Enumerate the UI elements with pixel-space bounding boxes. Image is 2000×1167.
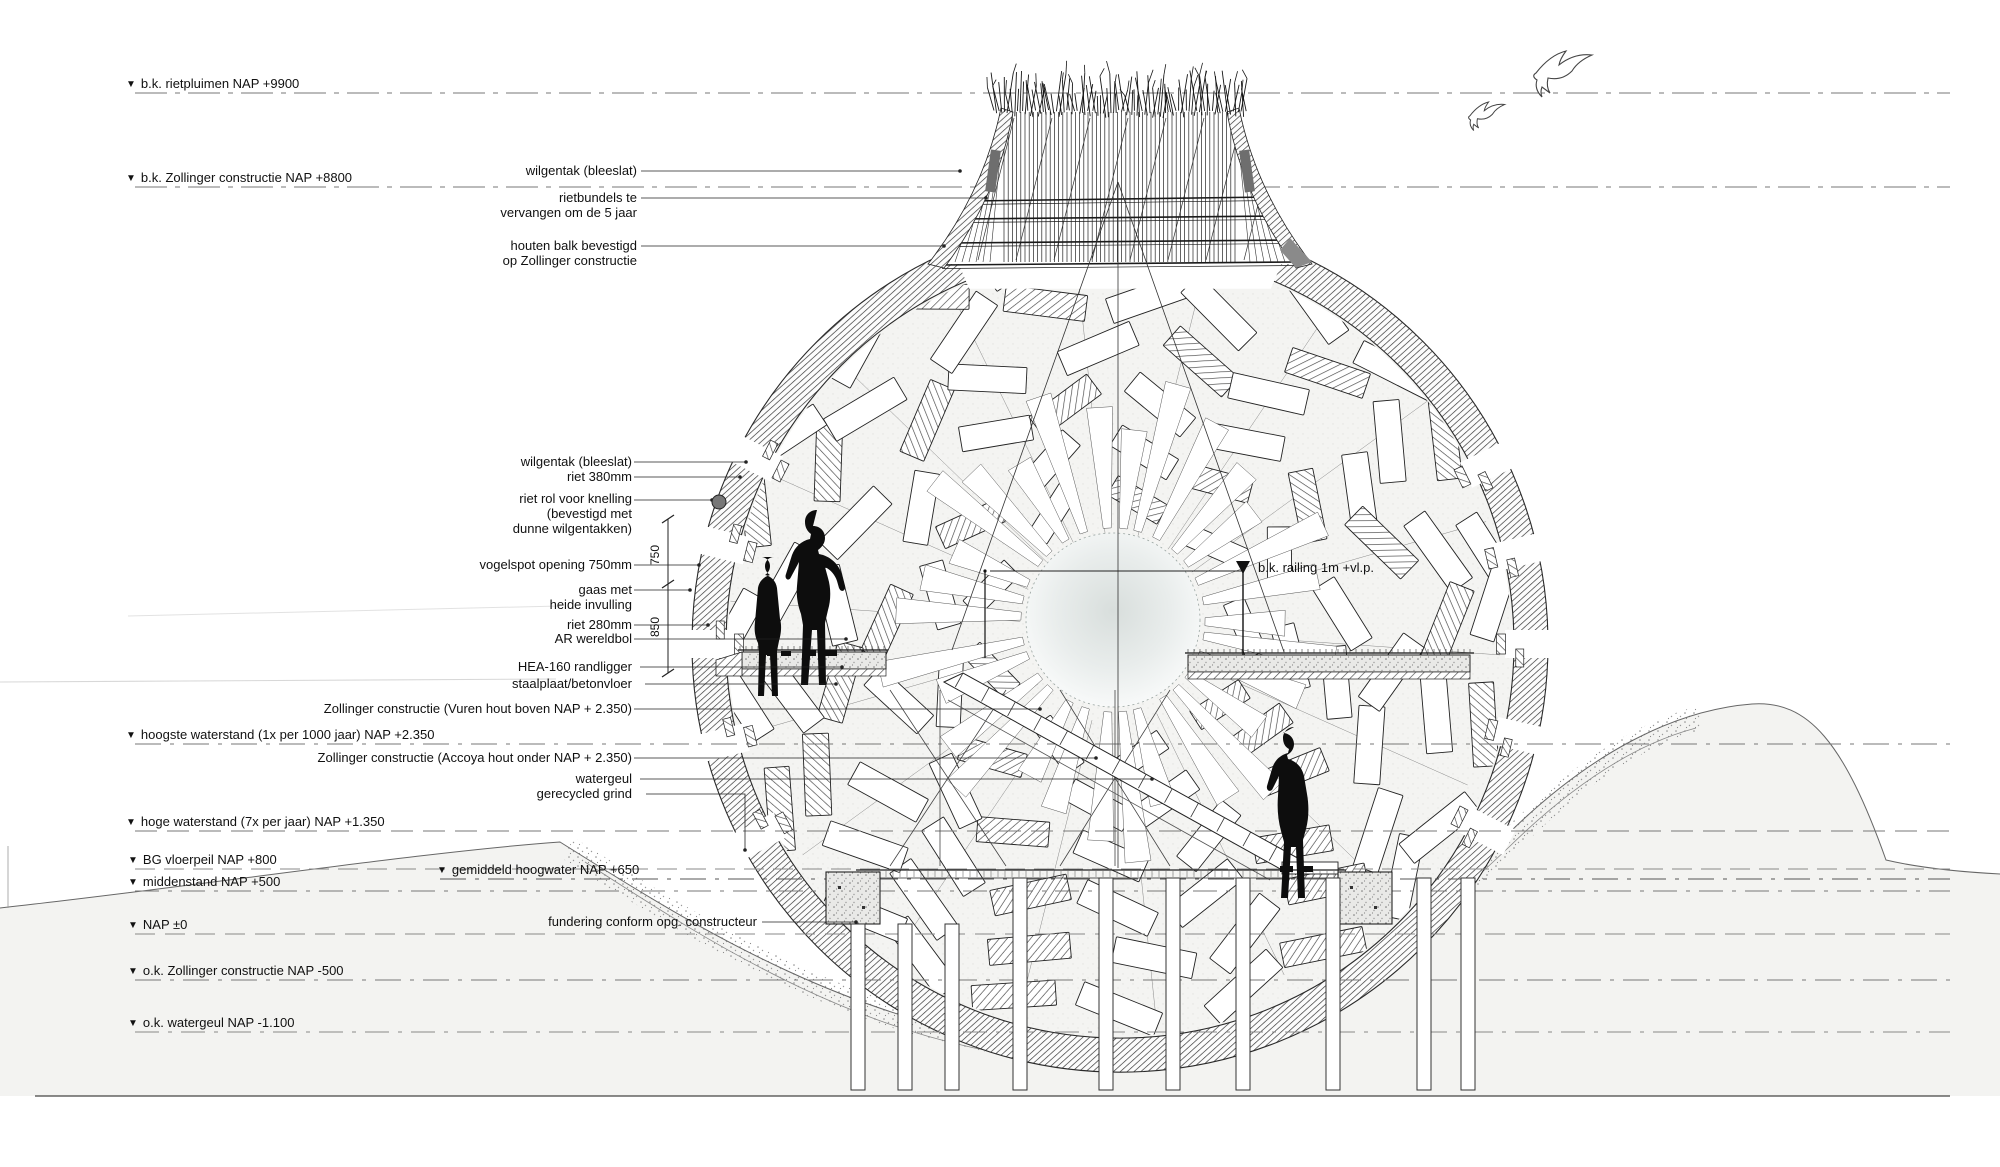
label-bk-railing: b.k. railing 1m +vl.p. [1258,560,1374,575]
callout-riet-280: riet 280mm [567,617,632,632]
callout-vogelspot: vogelspot opening 750mm [480,557,633,572]
level-marker-icon: ▼ [126,173,136,184]
datum-label-nap-nul: ▼NAP ±0 [128,917,187,933]
datum-label-zollinger-ok: ▼o.k. Zollinger constructie NAP -500 [128,963,344,979]
reed-chimney [928,61,1312,269]
level-marker-icon: ▼ [126,730,136,741]
datum-label-bg-vloerpeil: ▼BG vloerpeil NAP +800 [128,852,277,868]
level-marker-icon: ▼ [437,865,447,876]
callout-wilgentak-mid: wilgentak (bleeslat) [521,454,632,469]
callout-rietbundels: rietbundels tevervangen om de 5 jaar [500,190,637,220]
datum-label-rietpluimen: ▼b.k. rietpluimen NAP +9900 [126,76,299,92]
level-marker-icon: ▼ [128,855,138,866]
datum-label-zollinger-bk: ▼b.k. Zollinger constructie NAP +8800 [126,170,352,186]
callout-grind: gerecycled grind [537,786,632,801]
callout-houten-balk: houten balk bevestigdop Zollinger constr… [503,238,637,268]
datum-label-gemiddeld-hoogwater: ▼gemiddeld hoogwater NAP +650 [437,862,639,878]
datum-label-watergeul-ok: ▼o.k. watergeul NAP -1.100 [128,1015,294,1031]
callout-wilgentak-top: wilgentak (bleeslat) [526,163,637,178]
callout-watergeul: watergeul [576,771,632,786]
level-marker-icon: ▼ [126,817,136,828]
callout-staalplaat: staalplaat/betonvloer [512,676,632,691]
level-marker-icon: ▼ [128,1018,138,1029]
callout-riet-380: riet 380mm [567,469,632,484]
datum-label-middenstand: ▼middenstand NAP +500 [128,874,280,890]
dimension-850: 850 [648,612,662,642]
dimension-750: 750 [648,540,662,570]
section-drawing-sheet: ▼b.k. rietpluimen NAP +9900 ▼b.k. Zollin… [0,0,2000,1167]
birds [1469,51,1592,131]
level-marker-icon: ▼ [126,79,136,90]
callout-gaas: gaas metheide invulling [550,582,632,612]
callout-fundering: fundering conform opg. constructeur [548,914,757,929]
datum-label-hoogste-waterstand: ▼hoogste waterstand (1x per 1000 jaar) N… [126,727,434,743]
callout-hea: HEA-160 randligger [518,659,632,674]
callout-zollinger-vuren: Zollinger constructie (Vuren hout boven … [324,701,632,716]
level-marker-icon: ▼ [128,920,138,931]
datum-label-hoge-waterstand: ▼hoge waterstand (7x per jaar) NAP +1.35… [126,814,385,830]
callout-ar-wereldbol: AR wereldbol [555,631,632,646]
callout-zollinger-accoya: Zollinger constructie (Accoya hout onder… [318,750,632,765]
level-marker-icon: ▼ [128,966,138,977]
callout-riet-rol: riet rol voor knelling(bevestigd metdunn… [513,491,632,536]
level-marker-icon: ▼ [128,877,138,888]
